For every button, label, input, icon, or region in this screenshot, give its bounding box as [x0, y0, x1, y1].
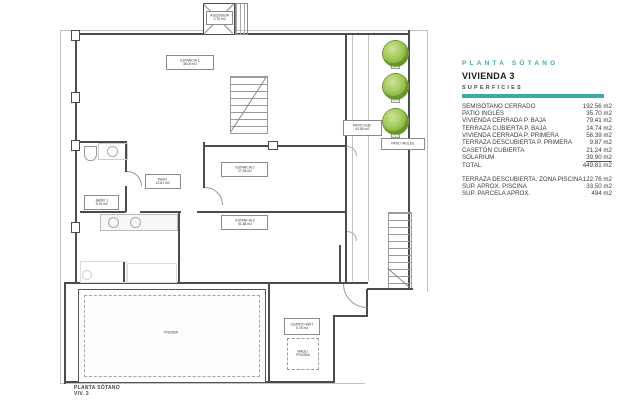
- legend-plan-title: PLANTA SÓTANO: [462, 60, 612, 67]
- room-label-bano1: BAÑO 15.91 m2: [84, 195, 119, 210]
- plant-bush: [382, 73, 409, 100]
- room-label-cuarto-inst: CUARTO INST.0.78 m2: [284, 318, 320, 335]
- surface-row: TERRAZA CUBIERTA P. BAJA14.74 m2: [462, 125, 612, 132]
- wall-lower-a: [80, 211, 126, 213]
- door-swing-patio: [347, 231, 357, 241]
- legend-unit-title: VIVIENDA 3: [462, 71, 612, 81]
- wall-stair-bottom: [367, 288, 413, 290]
- elevator-side-shaft: [235, 3, 248, 35]
- wall-terrace-left: [64, 284, 66, 384]
- wall-marker: [71, 140, 80, 151]
- wall-top-right: [233, 33, 410, 35]
- door-swing-terrace: [343, 284, 367, 308]
- plant-bush: [382, 108, 409, 135]
- room-label-patio-ingles: PATIO INGLES: [381, 138, 425, 150]
- surface-table-extra: TERRAZA DESCUBIERTA. ZONA PISCINA122.76 …: [462, 176, 612, 198]
- wall-estancia2-top-a: [205, 145, 268, 147]
- surface-row: SUP. APROX. PISCINA33.50 m2: [462, 183, 612, 190]
- wall-marker: [71, 222, 80, 233]
- room-label-piscina: PISCINA: [78, 328, 264, 338]
- wall-estancia3-right-stub: [339, 245, 341, 283]
- surface-row: VIVIENDA CERRADA P. BAJA79.41 m2: [462, 117, 612, 124]
- furniture-circle: [82, 270, 92, 280]
- wall-notch-bottom: [333, 315, 368, 317]
- door-swing-patio: [347, 146, 357, 156]
- wall-bathroom-right-b: [125, 186, 127, 212]
- wall-marker: [71, 92, 80, 103]
- room-label-ascensor: ASCENSOR2.70 m2: [206, 11, 233, 25]
- room-label-maqu-piscina: MAQU.PISCINA: [287, 338, 319, 370]
- site-boundary-bottom: [60, 383, 365, 384]
- site-boundary-right: [427, 30, 428, 292]
- toilet: [84, 146, 97, 161]
- interior-staircase: [230, 76, 268, 134]
- legend-section-title: SUPERFICIES: [462, 85, 612, 91]
- plan-caption: PLANTA SÓTANO VIV. 3: [74, 386, 120, 397]
- wall-hall-vertical: [203, 142, 205, 188]
- surface-row: PATIO INGLÉS35.70 m2: [462, 110, 612, 117]
- door-swing-bathroom: [127, 171, 142, 186]
- surface-row: VIVIENDA CERRADA P. PRIMERA56.39 m2: [462, 132, 612, 139]
- legend-accent-bar: [462, 94, 604, 98]
- room-label-estancia3: ESTANCIA 341.88 m2: [221, 215, 268, 230]
- wall-left: [75, 33, 77, 283]
- sink-basin: [107, 146, 118, 157]
- surface-row: TERRAZA DESCUBIERTA P. PRIMERA9.87 m2: [462, 139, 612, 146]
- room-label-paso: PASO12.81 m2: [145, 174, 181, 189]
- wall-kitchen-vertical: [178, 211, 180, 283]
- wall-top-left: [75, 33, 203, 35]
- room-label-estancia1: ESTANCIA 138.09 m2: [166, 55, 214, 70]
- patio-guide-line-1: [352, 35, 353, 281]
- surface-legend: PLANTA SÓTANO VIVIENDA 3 SUPERFICIES SEM…: [462, 60, 612, 198]
- surface-table: SEMISÓTANO CERRADO192.56 m2 PATIO INGLÉS…: [462, 103, 612, 170]
- surface-row: SEMISÓTANO CERRADO192.56 m2: [462, 103, 612, 110]
- kitchen-sink: [108, 217, 119, 228]
- site-boundary-left: [60, 30, 61, 384]
- room-label-patio-cub: PATIO CUB.43.80 m2: [343, 120, 382, 136]
- plan-caption-line2: VIV. 3: [74, 392, 120, 398]
- kitchen-hob: [130, 217, 141, 228]
- patio-guide-line-2: [368, 35, 369, 281]
- surface-row: CASETÓN CUBIERTA21.24 m2: [462, 147, 612, 154]
- wall-estancia2-top-b: [277, 145, 345, 147]
- room-label-estancia2: ESTANCIA 227.05 m2: [221, 162, 268, 177]
- surface-row-solarium: SOLARIUM39.90 m2: [462, 154, 612, 162]
- furniture-outline: [127, 263, 177, 283]
- wall-terrace-divider: [268, 284, 270, 382]
- wall-lower-b: [140, 211, 181, 213]
- surface-row-total: TOTAL449.81 m2: [462, 162, 612, 169]
- wall-patio-left: [345, 33, 347, 283]
- wall-marker: [71, 30, 80, 41]
- surface-row: SUP. PARCELA APROX.494 m2: [462, 190, 612, 197]
- wall-lower-c: [197, 211, 345, 213]
- plant-bush: [382, 40, 409, 67]
- wall-terrace-right: [333, 315, 335, 383]
- door-swing-hall: [205, 187, 223, 205]
- surface-row: TERRAZA DESCUBIERTA. ZONA PISCINA122.76 …: [462, 176, 612, 183]
